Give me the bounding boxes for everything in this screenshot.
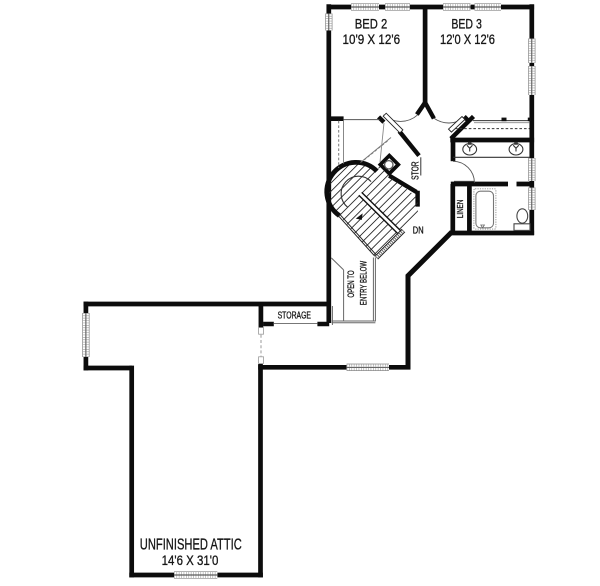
svg-text:STOR: STOR	[411, 161, 422, 180]
svg-text:OPEN TO: OPEN TO	[345, 270, 356, 297]
svg-text:BED 3: BED 3	[451, 17, 482, 33]
svg-text:12'0 X 12'6: 12'0 X 12'6	[440, 32, 495, 47]
svg-text:10'9 X 12'6: 10'9 X 12'6	[343, 32, 401, 47]
svg-text:STORAGE: STORAGE	[278, 310, 312, 321]
svg-text:DN: DN	[413, 226, 424, 237]
svg-text:ENTRY BELOW: ENTRY BELOW	[357, 261, 368, 305]
svg-text:LINEN: LINEN	[456, 199, 465, 218]
svg-text:14'6 X 31'0: 14'6 X 31'0	[162, 552, 219, 568]
svg-text:BED 2: BED 2	[355, 17, 388, 33]
